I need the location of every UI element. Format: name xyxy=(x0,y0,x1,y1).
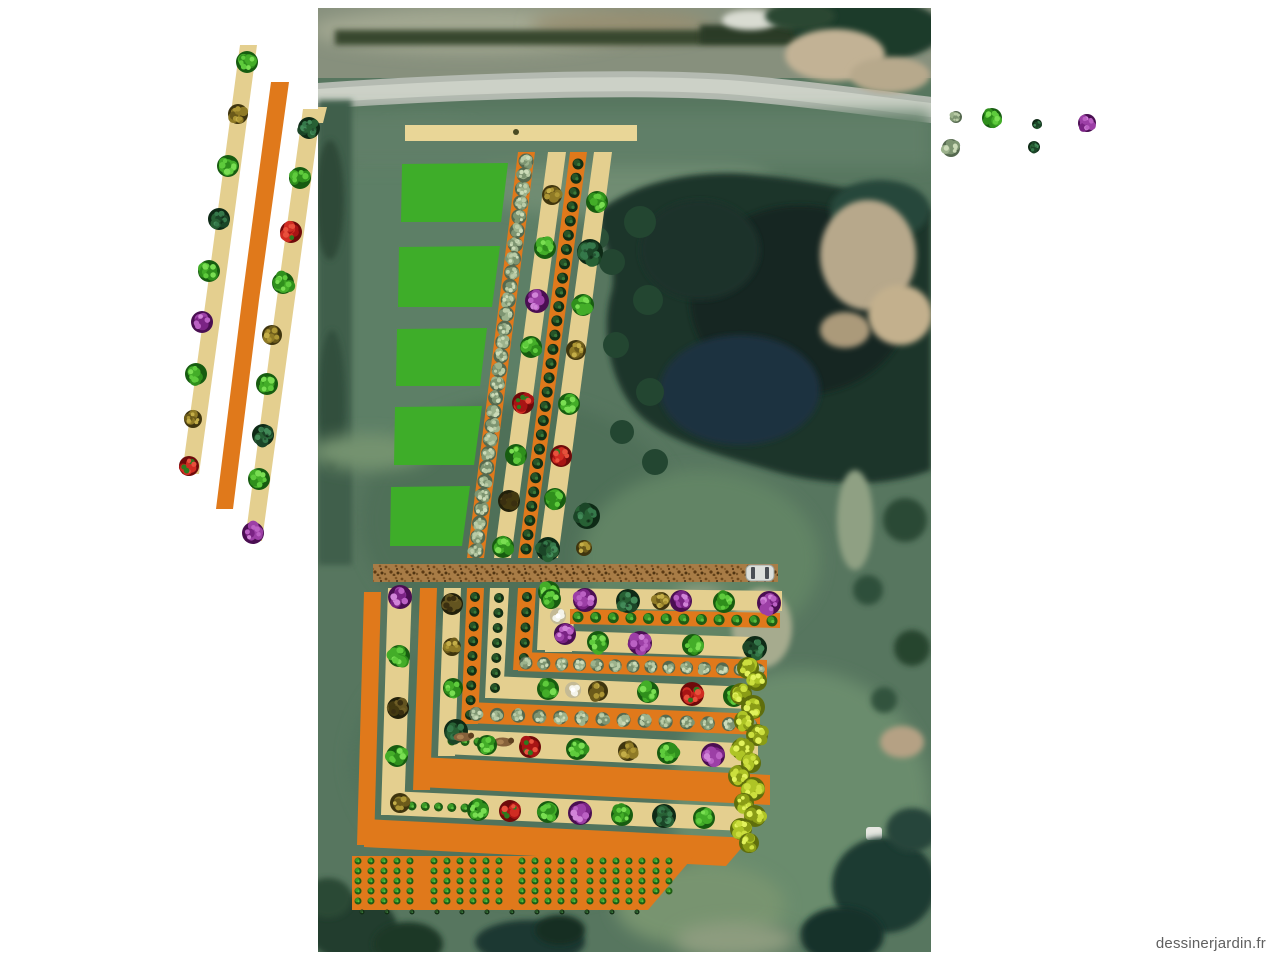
plant-icon-seedling[interactable] xyxy=(457,878,464,885)
plant-icon-seedling[interactable] xyxy=(431,878,438,885)
plant-icon-yellow-green-bush[interactable] xyxy=(739,833,759,853)
plant-icon-seedling[interactable] xyxy=(355,858,362,865)
plant-icon-small-dark-plant[interactable] xyxy=(549,330,560,341)
plant-icon-purple-flower[interactable] xyxy=(554,623,576,645)
plant-icon-dark-tree[interactable] xyxy=(652,804,676,828)
plant-icon-small-dark-plant[interactable] xyxy=(535,910,540,915)
satellite-feature xyxy=(850,57,930,93)
plant-icon-seedling[interactable] xyxy=(571,888,578,895)
plant-icon-seedling[interactable] xyxy=(590,612,601,623)
plant-icon-small-dark-plant[interactable] xyxy=(470,592,480,602)
plant-icon-purple-flower[interactable] xyxy=(191,311,213,333)
plant-icon-seedling[interactable] xyxy=(470,878,477,885)
plant-icon-white-flowers[interactable] xyxy=(550,608,566,624)
plant-icon-seedling[interactable] xyxy=(545,858,552,865)
satellite-feature xyxy=(880,726,924,758)
plant-icon-green-bush[interactable] xyxy=(537,801,559,823)
plant-icon-seedling[interactable] xyxy=(639,888,646,895)
plant-icon-seedling[interactable] xyxy=(587,858,594,865)
plant-icon-seedling[interactable] xyxy=(749,615,760,626)
plant-icon-red-flower[interactable] xyxy=(550,445,572,467)
plant-icon-purple-flower[interactable] xyxy=(525,289,549,313)
plant-icon-small-dark-plant[interactable] xyxy=(468,651,478,661)
plant-icon-small-dark-plant[interactable] xyxy=(492,638,502,648)
plant-icon-small-dark-plant[interactable] xyxy=(520,638,530,648)
plant-icon-seedling[interactable] xyxy=(545,878,552,885)
plant-icon-pale-shrub[interactable] xyxy=(472,516,487,531)
plant-icon-green-bush[interactable] xyxy=(558,393,580,415)
garden-designer-canvas: 2023 Google dessinerjardin.fr xyxy=(0,0,1280,960)
plant-icon-seedling[interactable] xyxy=(626,898,633,905)
plant-icon-seedling[interactable] xyxy=(457,888,464,895)
plant-icon-small-dark-plant[interactable] xyxy=(467,666,477,676)
plant-icon-seedling[interactable] xyxy=(407,868,414,875)
plant-icon-seedling[interactable] xyxy=(470,898,477,905)
plant-icon-seedling[interactable] xyxy=(407,878,414,885)
plant-icon-seedling[interactable] xyxy=(639,858,646,865)
plant-icon-small-dark-plant[interactable] xyxy=(546,358,557,369)
plant-icon-pale-shrub[interactable] xyxy=(501,292,516,307)
plant-icon-seedling[interactable] xyxy=(731,615,742,626)
plant-icon-seedling[interactable] xyxy=(639,868,646,875)
plant-icon-seedling[interactable] xyxy=(444,868,451,875)
plant-icon-seedling[interactable] xyxy=(532,878,539,885)
plant-icon-purple-flower[interactable] xyxy=(701,743,725,767)
plant-icon-green-bush[interactable] xyxy=(248,468,270,490)
satellite-feature xyxy=(640,200,760,300)
plant-icon-seedling[interactable] xyxy=(558,888,565,895)
plant-icon-seedling[interactable] xyxy=(470,858,477,865)
plant-icon-small-dark-plant[interactable] xyxy=(532,458,543,469)
plant-icon-olive-tree[interactable] xyxy=(576,540,592,556)
plant-icon-small-dark-plant[interactable] xyxy=(490,683,500,693)
plant-icon-seedling[interactable] xyxy=(355,898,362,905)
plant-icon-pale-shrub[interactable] xyxy=(490,376,505,391)
plant-icon-small-dark-plant[interactable] xyxy=(410,910,415,915)
plant-icon-seedling[interactable] xyxy=(600,868,607,875)
plant-icon-small-dark-plant[interactable] xyxy=(555,287,566,298)
plant-icon-green-bush[interactable] xyxy=(256,373,278,395)
plant-icon-pale-shrub[interactable] xyxy=(486,404,501,419)
plant-icon-small-dark-plant[interactable] xyxy=(526,501,537,512)
plant-icon-seedling[interactable] xyxy=(444,898,451,905)
plot-rectangle[interactable] xyxy=(398,246,500,307)
plant-icon-seedling[interactable] xyxy=(519,868,526,875)
plant-icon-small-dark-plant[interactable] xyxy=(522,529,533,540)
plant-icon-purple-flower[interactable] xyxy=(670,590,692,612)
plant-icon-small-dark-plant[interactable] xyxy=(530,472,541,483)
garden-plan-scene: 2023 Google xyxy=(0,0,1280,960)
plant-icon-pale-shrub[interactable] xyxy=(662,661,675,674)
plant-icon-pale-shrub[interactable] xyxy=(483,432,498,447)
plant-icon-small-dark-plant[interactable] xyxy=(521,623,531,633)
plant-icon-seedling[interactable] xyxy=(519,858,526,865)
plant-icon-small-dark-plant[interactable] xyxy=(469,622,479,632)
plant-icon-small-dark-plant[interactable] xyxy=(466,695,476,705)
plant-icon-small-dark-plant[interactable] xyxy=(569,187,580,198)
plant-icon-red-flower[interactable] xyxy=(179,456,199,476)
plant-icon-seedling[interactable] xyxy=(381,888,388,895)
plant-icon-olive-tree[interactable] xyxy=(566,340,586,360)
plant-icon-seedling[interactable] xyxy=(394,888,401,895)
plant-icon-seedling[interactable] xyxy=(532,888,539,895)
plant-icon-olive-tree[interactable] xyxy=(228,104,248,124)
plant-icon-seedling[interactable] xyxy=(600,878,607,885)
plant-icon-seedling[interactable] xyxy=(457,898,464,905)
plant-icon-seedling[interactable] xyxy=(653,858,660,865)
plant-icon-seedling[interactable] xyxy=(587,888,594,895)
plant-icon-pale-shrub[interactable] xyxy=(532,710,546,724)
plant-icon-small-dark-plant[interactable] xyxy=(521,544,532,555)
satellite-feature xyxy=(633,285,663,315)
plant-icon-seedling[interactable] xyxy=(571,858,578,865)
plant-icon-seedling[interactable] xyxy=(470,868,477,875)
plant-icon-pale-shrub[interactable] xyxy=(627,660,640,673)
satellite-feature xyxy=(886,808,938,852)
plant-icon-seedling[interactable] xyxy=(626,888,633,895)
plant-icon-small-dark-plant[interactable] xyxy=(460,910,465,915)
plant-icon-seedling[interactable] xyxy=(457,868,464,875)
plot-rectangle[interactable] xyxy=(401,163,508,222)
plant-icon-small-dark-plant[interactable] xyxy=(494,593,504,603)
plant-icon-seedling[interactable] xyxy=(368,888,375,895)
plant-icon-purple-flower[interactable] xyxy=(568,801,592,825)
plant-icon-small-dark-plant[interactable] xyxy=(534,444,545,455)
plant-icon-seedling[interactable] xyxy=(558,898,565,905)
plant-icon-seedling[interactable] xyxy=(767,616,778,627)
plant-icon-seedling[interactable] xyxy=(558,868,565,875)
plot-rectangle[interactable] xyxy=(396,328,487,386)
plant-icon-small-dark-plant[interactable] xyxy=(536,429,547,440)
satellite-feature xyxy=(535,915,585,945)
plant-icon-seedling[interactable] xyxy=(496,898,503,905)
plant-icon-seedling[interactable] xyxy=(407,858,414,865)
plant-icon-small-dark-plant[interactable] xyxy=(385,910,390,915)
plant-icon-small-dark-plant[interactable] xyxy=(493,608,503,618)
plant-icon-seedling[interactable] xyxy=(394,868,401,875)
plant-icon-seedling[interactable] xyxy=(639,878,646,885)
plant-icon-seedling[interactable] xyxy=(613,878,620,885)
plant-icon-seedling[interactable] xyxy=(444,878,451,885)
plant-icon-white-flowers[interactable] xyxy=(565,682,581,698)
plant-icon-pale-shrub[interactable] xyxy=(644,660,657,673)
plant-icon-seedling[interactable] xyxy=(483,878,490,885)
plant-icon-small-dark-plant[interactable] xyxy=(567,201,578,212)
plant-icon-seedling[interactable] xyxy=(558,858,565,865)
plant-icon-seedling[interactable] xyxy=(407,898,414,905)
plant-icon-seedling[interactable] xyxy=(457,858,464,865)
plant-icon-seedling[interactable] xyxy=(519,898,526,905)
plant-icon-seedling[interactable] xyxy=(496,858,503,865)
path-strip-top-bar[interactable] xyxy=(405,125,637,141)
plant-icon-seedling[interactable] xyxy=(431,888,438,895)
plant-icon-pale-shrub[interactable] xyxy=(513,195,528,210)
plant-icon-seedling[interactable] xyxy=(653,868,660,875)
plant-icon-small-dark-plant[interactable] xyxy=(513,129,519,135)
plant-icon-seedling[interactable] xyxy=(368,878,375,885)
plant-icon-pale-shrub[interactable] xyxy=(716,662,729,675)
plant-icon-small-dark-plant[interactable] xyxy=(551,315,562,326)
plant-icon-green-bush[interactable] xyxy=(505,444,527,466)
plant-icon-pale-shrub[interactable] xyxy=(485,418,501,433)
plant-icon-green-bush[interactable] xyxy=(544,488,566,510)
plant-icon-seedling[interactable] xyxy=(558,878,565,885)
plant-icon-pale-shrub[interactable] xyxy=(511,209,526,224)
plant-icon-seedling[interactable] xyxy=(643,613,654,624)
plant-icon-small-dark-plant[interactable] xyxy=(493,623,503,633)
plant-icon-small-dark-plant[interactable] xyxy=(557,273,568,284)
plant-icon-pale-shrub[interactable] xyxy=(497,321,512,336)
plant-icon-seedling[interactable] xyxy=(394,878,401,885)
plant-icon-red-flower[interactable] xyxy=(519,736,541,758)
plant-icon-small-dark-plant[interactable] xyxy=(522,592,532,602)
plant-icon-small-dark-plant[interactable] xyxy=(491,668,501,678)
satellite-feature xyxy=(610,420,634,444)
plant-icon-seedling[interactable] xyxy=(496,888,503,895)
plant-icon-seedling[interactable] xyxy=(381,858,388,865)
plant-icon-seedling[interactable] xyxy=(571,898,578,905)
plant-icon-pale-shrub[interactable] xyxy=(479,460,494,475)
plant-icon-pale-shrub[interactable] xyxy=(474,502,489,517)
plant-icon-seedling[interactable] xyxy=(421,802,430,811)
plant-icon-small-dark-plant[interactable] xyxy=(540,401,551,412)
plant-icon-seedling[interactable] xyxy=(613,898,620,905)
plant-icon-green-bush[interactable] xyxy=(217,155,239,177)
plant-icon-seedling[interactable] xyxy=(407,888,414,895)
plant-icon-small-dark-plant[interactable] xyxy=(547,344,558,355)
plant-icon-seedling[interactable] xyxy=(496,878,503,885)
plant-icon-green-bush[interactable] xyxy=(198,260,220,282)
plant-icon-olive-tree[interactable] xyxy=(262,325,282,345)
plant-icon-small-dark-plant[interactable] xyxy=(491,653,501,663)
plant-icon-seedling[interactable] xyxy=(639,898,646,905)
plant-icon-small-dark-plant[interactable] xyxy=(466,681,476,691)
plant-icon-seedling[interactable] xyxy=(519,878,526,885)
plant-icon-small-dark-plant[interactable] xyxy=(542,387,553,398)
plant-icon-small-dark-plant[interactable] xyxy=(565,216,576,227)
satellite-feature xyxy=(660,335,820,445)
plant-icon-dark-tree[interactable] xyxy=(616,589,640,613)
plant-icon-green-bush[interactable] xyxy=(693,807,715,829)
plant-icon-small-dark-plant[interactable] xyxy=(521,607,531,617)
plant-icon-seedling[interactable] xyxy=(532,868,539,875)
plant-icon-seedling[interactable] xyxy=(626,868,633,875)
plant-icon-seedling[interactable] xyxy=(626,858,633,865)
plant-icon-dark-olive-shrub[interactable] xyxy=(387,697,409,719)
plant-icon-small-dark-plant[interactable] xyxy=(528,486,539,497)
plant-icon-small-dark-plant[interactable] xyxy=(560,910,565,915)
plant-icon-seedling[interactable] xyxy=(444,858,451,865)
plant-icon-seedling[interactable] xyxy=(573,612,584,623)
plant-icon-red-flower[interactable] xyxy=(499,800,521,822)
plant-icon-seedling[interactable] xyxy=(434,803,443,812)
plant-icon-purple-flower[interactable] xyxy=(388,585,412,609)
plant-icon-green-bush[interactable] xyxy=(520,336,542,358)
plant-icon-seedling[interactable] xyxy=(545,888,552,895)
plant-icon-small-dark-plant[interactable] xyxy=(559,258,570,269)
plant-icon-green-bush[interactable] xyxy=(477,735,497,755)
satellite-feature xyxy=(820,312,870,348)
plant-icon-dark-tree[interactable] xyxy=(208,208,230,230)
plant-icon-seedling[interactable] xyxy=(381,878,388,885)
plant-icon-green-bush[interactable] xyxy=(682,634,704,656)
plant-icon-seedling[interactable] xyxy=(666,878,673,885)
plant-icon-green-bush[interactable] xyxy=(537,678,559,700)
plant-icon-seedling[interactable] xyxy=(696,614,707,625)
plant-icon-purple-flower[interactable] xyxy=(573,588,597,612)
plant-icon-seedling[interactable] xyxy=(532,898,539,905)
plant-icon-seedling[interactable] xyxy=(381,898,388,905)
plant-icon-green-bush[interactable] xyxy=(289,167,311,189)
plant-icon-seedling[interactable] xyxy=(666,868,673,875)
plant-icon-small-dark-plant[interactable] xyxy=(538,415,549,426)
dirt-road-strip[interactable] xyxy=(373,564,778,582)
plant-icon-seedling[interactable] xyxy=(431,868,438,875)
plant-icon-pale-shrub[interactable] xyxy=(502,279,517,294)
plant-icon-small-dark-plant[interactable] xyxy=(469,607,479,617)
plant-icon-small-dark-plant[interactable] xyxy=(553,301,564,312)
watermark: dessinerjardin.fr xyxy=(1156,935,1266,952)
satellite-feature xyxy=(837,470,873,570)
plant-icon-purple-flower[interactable] xyxy=(1078,114,1096,132)
plant-icon-seedling[interactable] xyxy=(571,868,578,875)
satellite-feature xyxy=(624,206,656,238)
plant-icon-dark-olive-shrub[interactable] xyxy=(498,490,520,512)
plant-icon-small-dark-plant[interactable] xyxy=(435,910,440,915)
plant-icon-red-flower[interactable] xyxy=(280,221,302,243)
plant-icon-seedling[interactable] xyxy=(470,888,477,895)
satellite-feature xyxy=(853,575,883,605)
plant-icon-seedling[interactable] xyxy=(368,898,375,905)
satellite-feature xyxy=(883,498,927,542)
plant-icon-small-dark-plant[interactable] xyxy=(524,515,535,526)
plant-icon-pale-shrub[interactable] xyxy=(638,714,652,728)
satellite-feature xyxy=(868,285,932,345)
satellite-feature xyxy=(642,449,668,475)
plant-icon-seedling[interactable] xyxy=(613,868,620,875)
plant-icon-seedling[interactable] xyxy=(545,868,552,875)
plant-icon-seedling[interactable] xyxy=(545,898,552,905)
plot-rectangle[interactable] xyxy=(390,486,470,546)
plant-icon-green-bush[interactable] xyxy=(236,51,258,73)
plant-icon-seedling[interactable] xyxy=(447,803,456,812)
plant-icon-pale-shrub[interactable] xyxy=(722,717,736,731)
plant-icon-seedling[interactable] xyxy=(394,858,401,865)
plant-icon-small-dark-plant[interactable] xyxy=(573,159,584,170)
plant-icon-seedling[interactable] xyxy=(613,888,620,895)
plant-icon-seedling[interactable] xyxy=(653,878,660,885)
plant-icon-small-dark-plant[interactable] xyxy=(360,910,365,915)
plant-icon-seedling[interactable] xyxy=(600,898,607,905)
plant-icon-pale-shrub[interactable] xyxy=(499,307,514,322)
plant-icon-seedling[interactable] xyxy=(519,888,526,895)
plant-icon-seedling[interactable] xyxy=(714,614,725,625)
plant-icon-dark-olive-shrub[interactable] xyxy=(441,593,463,615)
plant-icon-seedling[interactable] xyxy=(394,898,401,905)
plant-icon-seedling[interactable] xyxy=(368,868,375,875)
satellite-feature xyxy=(636,378,664,406)
plant-icon-pale-shrub[interactable] xyxy=(520,657,533,670)
plant-icon-seedling[interactable] xyxy=(483,868,490,875)
plant-icon-seedling[interactable] xyxy=(532,858,539,865)
plant-icon-seedling[interactable] xyxy=(571,878,578,885)
plant-icon-seedling[interactable] xyxy=(368,858,375,865)
plant-icon-seedling[interactable] xyxy=(661,613,672,624)
plant-icon-pale-shrub[interactable] xyxy=(609,659,622,672)
car-icon[interactable] xyxy=(746,565,774,581)
plant-icon-seedling[interactable] xyxy=(600,858,607,865)
plant-icon-small-dark-plant[interactable] xyxy=(510,910,515,915)
plant-icon-green-bush[interactable] xyxy=(541,589,561,609)
plant-icon-small-dark-plant[interactable] xyxy=(635,910,640,915)
plant-icon-pale-shrub[interactable] xyxy=(490,708,504,722)
plant-icon-small-dark-plant[interactable] xyxy=(561,244,572,255)
plant-icon-small-dark-plant[interactable] xyxy=(585,910,590,915)
plant-icon-small-dark-plant[interactable] xyxy=(544,372,555,383)
plant-icon-seedling[interactable] xyxy=(355,888,362,895)
satellite-feature xyxy=(316,140,344,260)
plant-icon-seedling[interactable] xyxy=(587,878,594,885)
plant-icon-seedling[interactable] xyxy=(666,888,673,895)
plant-icon-seedling[interactable] xyxy=(653,888,660,895)
plant-icon-small-dark-plant[interactable] xyxy=(563,230,574,241)
plant-icon-seedling[interactable] xyxy=(355,868,362,875)
plant-icon-seedling[interactable] xyxy=(444,888,451,895)
plant-icon-small-dark-plant[interactable] xyxy=(610,910,615,915)
plant-icon-small-dark-plant[interactable] xyxy=(485,910,490,915)
plant-icon-seedling[interactable] xyxy=(625,613,636,624)
plant-icon-seedling[interactable] xyxy=(613,858,620,865)
plant-icon-seedling[interactable] xyxy=(431,898,438,905)
plant-icon-pale-shrub[interactable] xyxy=(481,446,496,461)
plant-icon-seedling[interactable] xyxy=(496,868,503,875)
plant-icon-seedling[interactable] xyxy=(587,898,594,905)
plant-icon-seedling[interactable] xyxy=(600,888,607,895)
plot-rectangle[interactable] xyxy=(394,406,482,465)
plant-icon-seedling[interactable] xyxy=(626,878,633,885)
satellite-feature xyxy=(894,630,930,666)
plant-icon-green-bush[interactable] xyxy=(586,191,608,213)
plant-icon-green-bush[interactable] xyxy=(982,108,1002,128)
plant-icon-seedling[interactable] xyxy=(381,868,388,875)
plant-icon-pale-shrub[interactable] xyxy=(477,474,492,489)
plant-icon-seedling[interactable] xyxy=(483,898,490,905)
plant-icon-seedling[interactable] xyxy=(666,858,673,865)
plant-icon-seedling[interactable] xyxy=(587,868,594,875)
satellite-feature xyxy=(603,332,629,358)
plant-icon-seedling[interactable] xyxy=(678,614,689,625)
plant-icon-small-dark-plant[interactable] xyxy=(571,173,582,184)
plant-icon-seedling[interactable] xyxy=(431,858,438,865)
plant-icon-seedling[interactable] xyxy=(355,878,362,885)
plant-icon-seedling[interactable] xyxy=(483,858,490,865)
plant-icon-seedling[interactable] xyxy=(483,888,490,895)
satellite-feature xyxy=(871,687,897,713)
plant-icon-seedling[interactable] xyxy=(608,612,619,623)
plant-icon-small-dark-plant[interactable] xyxy=(468,636,478,646)
